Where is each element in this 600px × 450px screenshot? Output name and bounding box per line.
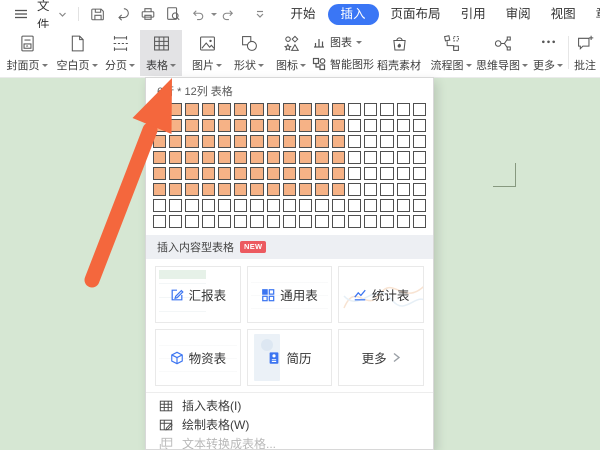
ribbon-item-chart[interactable]: 图表 (312, 31, 374, 53)
flowchart-icon (442, 34, 461, 53)
grid-cell[interactable] (218, 167, 231, 180)
grid-cell[interactable] (234, 199, 247, 212)
more-dots-icon (539, 34, 558, 53)
grid-cell[interactable] (364, 103, 377, 116)
grid-cell[interactable] (413, 135, 426, 148)
insert-table-icon (159, 399, 173, 413)
grid-cell[interactable] (380, 167, 393, 180)
grid-cell[interactable] (234, 103, 247, 116)
chevron-right-icon (392, 352, 401, 363)
grid-cell[interactable] (267, 151, 280, 164)
grid-cell[interactable] (202, 199, 215, 212)
ribbon-item-docer-assets[interactable]: 稻壳素材 (372, 30, 426, 76)
grid-cell[interactable] (299, 215, 312, 228)
grid-cell[interactable] (413, 215, 426, 228)
grid-cell[interactable] (299, 119, 312, 132)
grid-cell[interactable] (348, 199, 361, 212)
mindmap-icon (493, 34, 512, 53)
grid-cell[interactable] (299, 167, 312, 180)
grid-cell[interactable] (283, 119, 296, 132)
grid-cell[interactable] (250, 199, 263, 212)
grid-cell[interactable] (185, 151, 198, 164)
table-dropdown-menu: 插入表格(I) 绘制表格(W) 文本转换成表格... (146, 392, 433, 450)
grid-cell[interactable] (234, 167, 247, 180)
caret-down-icon (92, 64, 98, 67)
table-icon (152, 34, 171, 53)
shapes-icon (240, 34, 259, 53)
grid-cell[interactable] (267, 119, 280, 132)
ribbon-item-label: 表格 (146, 57, 168, 73)
new-badge: NEW (240, 241, 266, 252)
grid-cell[interactable] (185, 183, 198, 196)
grid-cell[interactable] (153, 103, 166, 116)
grid-cell[interactable] (267, 183, 280, 196)
grid-cell[interactable] (218, 151, 231, 164)
chart-icon (312, 35, 326, 49)
grid-cell[interactable] (413, 199, 426, 212)
grid-cell[interactable] (153, 135, 166, 148)
grid-cell[interactable] (315, 135, 328, 148)
ribbon-divider (568, 36, 569, 69)
grid-cell[interactable] (397, 135, 410, 148)
content-table-cards: 汇报表 通用表 统计表 物资表 简历 更多 (146, 259, 433, 392)
grid-cell[interactable] (234, 135, 247, 148)
grid-cell[interactable] (234, 183, 247, 196)
grid-cell[interactable] (202, 183, 215, 196)
grid-cell[interactable] (202, 167, 215, 180)
content-table-section-header: 插入内容型表格 NEW (146, 235, 433, 259)
grid-cell[interactable] (169, 167, 182, 180)
export-pdf-icon[interactable] (115, 6, 131, 22)
report-table-icon (170, 288, 184, 302)
ribbon-item-label: 图标 (276, 57, 298, 73)
grid-cell[interactable] (348, 135, 361, 148)
grid-cell[interactable] (250, 103, 263, 116)
table-dropdown-panel: 6行 * 12列 表格 插入内容型表格 NEW 汇报表 通用表 统计表 物资表 (145, 77, 434, 450)
grid-cell[interactable] (218, 199, 231, 212)
card-label: 简历 (286, 348, 311, 367)
menu-item-convert-text-to-table: 文本转换成表格... (146, 434, 433, 450)
card-label: 汇报表 (189, 285, 227, 304)
grid-cell[interactable] (315, 199, 328, 212)
card-stats-table[interactable]: 统计表 (338, 266, 424, 323)
grid-cell[interactable] (250, 183, 263, 196)
card-general-table[interactable]: 通用表 (247, 266, 333, 323)
grid-cell[interactable] (332, 215, 345, 228)
smart-graphics-icon (312, 57, 326, 71)
grid-cell[interactable] (169, 119, 182, 132)
grid-cell[interactable] (234, 215, 247, 228)
grid-cell[interactable] (202, 151, 215, 164)
grid-cell[interactable] (218, 103, 231, 116)
tab-review[interactable]: 审阅 (496, 0, 541, 28)
grid-cell[interactable] (202, 103, 215, 116)
grid-cell[interactable] (364, 199, 377, 212)
grid-cell[interactable] (234, 151, 247, 164)
grid-cell[interactable] (185, 135, 198, 148)
menu-item-insert-table[interactable]: 插入表格(I) (146, 396, 433, 415)
grid-cell[interactable] (348, 119, 361, 132)
titlebar: 文件 开始 插入 页面布局 引用 审阅 (0, 0, 600, 28)
grid-cell[interactable] (380, 151, 393, 164)
card-resume[interactable]: 简历 (247, 329, 333, 386)
chevron-down-icon[interactable] (58, 10, 67, 19)
tab-references[interactable]: 引用 (451, 0, 496, 28)
grid-cell[interactable] (332, 135, 345, 148)
grid-cell[interactable] (380, 199, 393, 212)
ribbon-item-label: 批注 (574, 57, 596, 73)
icons-icon (282, 34, 301, 53)
grid-cell[interactable] (364, 183, 377, 196)
grid-cell[interactable] (397, 199, 410, 212)
ribbon-item-label: 图表 (330, 34, 352, 50)
hamburger-icon[interactable] (14, 7, 28, 21)
menu-item-label: 文本转换成表格... (182, 435, 276, 450)
grid-cell[interactable] (250, 167, 263, 180)
grid-cell[interactable] (283, 183, 296, 196)
grid-cell[interactable] (299, 135, 312, 148)
caret-down-icon (258, 64, 264, 67)
grid-cell[interactable] (283, 167, 296, 180)
grid-cell[interactable] (153, 119, 166, 132)
grid-cell[interactable] (299, 151, 312, 164)
grid-cell[interactable] (397, 183, 410, 196)
grid-cell[interactable] (380, 119, 393, 132)
grid-cell[interactable] (364, 151, 377, 164)
ribbon-item-icons[interactable]: 图标 (270, 30, 312, 76)
margin-corner-mark (515, 163, 516, 187)
grid-cell[interactable] (202, 215, 215, 228)
grid-cell[interactable] (397, 167, 410, 180)
grid-cell[interactable] (315, 151, 328, 164)
grid-cell[interactable] (250, 135, 263, 148)
ribbon-item-label: 智能图形 (330, 56, 374, 72)
grid-cell[interactable] (348, 167, 361, 180)
ribbon-item-more[interactable]: 更多 (530, 30, 566, 76)
tab-home[interactable]: 开始 (281, 0, 326, 28)
grid-cell[interactable] (397, 215, 410, 228)
grid-cell[interactable] (283, 151, 296, 164)
ribbon-item-shapes[interactable]: 形状 (228, 30, 270, 76)
ribbon-item-label: 稻壳素材 (377, 57, 421, 73)
grid-cell[interactable] (185, 103, 198, 116)
ribbon-item-label: 形状 (234, 57, 256, 73)
grid-cell[interactable] (332, 167, 345, 180)
grid-cell[interactable] (218, 135, 231, 148)
grid-cell[interactable] (364, 135, 377, 148)
caret-down-icon (42, 64, 48, 67)
ribbon-item-blank-page[interactable]: 空白页 (52, 30, 102, 76)
margin-corner-mark (493, 186, 516, 187)
ribbon-item-label: 更多 (533, 57, 555, 73)
grid-cell[interactable] (299, 103, 312, 116)
caret-down-icon (356, 41, 362, 44)
grid-cell[interactable] (413, 167, 426, 180)
ribbon-item-comment[interactable]: 批注 (571, 30, 599, 76)
grid-cell[interactable] (299, 183, 312, 196)
grid-cell[interactable] (185, 119, 198, 132)
grid-cell[interactable] (267, 103, 280, 116)
grid-cell[interactable] (185, 199, 198, 212)
grid-cell[interactable] (250, 119, 263, 132)
grid-cell[interactable] (283, 135, 296, 148)
ribbon-item-label: 封面页 (7, 57, 40, 73)
grid-cell[interactable] (397, 119, 410, 132)
grid-cell[interactable] (332, 103, 345, 116)
table-size-grid (146, 103, 433, 228)
grid-cell[interactable] (413, 119, 426, 132)
caret-down-icon (300, 64, 306, 67)
card-report-table[interactable]: 汇报表 (155, 266, 241, 323)
grid-cell[interactable] (267, 135, 280, 148)
card-label: 更多 (362, 348, 387, 367)
comment-icon (576, 34, 595, 53)
card-supplies-table[interactable]: 物资表 (155, 329, 241, 386)
ribbon-item-label: 分页 (105, 57, 127, 73)
grid-cell[interactable] (267, 199, 280, 212)
grid-cell[interactable] (413, 183, 426, 196)
undo-dropdown-caret-icon[interactable] (211, 13, 217, 16)
docer-assets-icon (390, 34, 409, 53)
grid-cell[interactable] (364, 119, 377, 132)
grid-cell[interactable] (413, 151, 426, 164)
grid-cell[interactable] (315, 167, 328, 180)
divider (78, 7, 79, 21)
grid-cell[interactable] (169, 215, 182, 228)
grid-cell[interactable] (267, 215, 280, 228)
supplies-table-icon (170, 351, 184, 365)
grid-cell[interactable] (169, 199, 182, 212)
grid-cell[interactable] (283, 215, 296, 228)
ribbon-item-cover-page[interactable]: 封面页 (2, 30, 52, 76)
redo-icon[interactable] (221, 7, 236, 22)
menu-item-label: 绘制表格(W) (182, 416, 249, 433)
resume-icon (267, 351, 281, 365)
grid-cell[interactable] (153, 215, 166, 228)
grid-cell[interactable] (250, 215, 263, 228)
grid-cell[interactable] (380, 215, 393, 228)
ribbon-item-label: 图片 (192, 57, 214, 73)
caret-down-icon (129, 64, 135, 67)
ribbon-item-picture[interactable]: 图片 (186, 30, 228, 76)
stats-table-icon (353, 288, 367, 302)
grid-cell[interactable] (348, 215, 361, 228)
grid-cell[interactable] (153, 183, 166, 196)
grid-cell[interactable] (218, 183, 231, 196)
grid-cell[interactable] (348, 103, 361, 116)
grid-cell[interactable] (202, 119, 215, 132)
caret-down-icon (557, 64, 563, 67)
grid-cell[interactable] (169, 103, 182, 116)
tab-page-layout[interactable]: 页面布局 (381, 0, 451, 28)
grid-cell[interactable] (283, 103, 296, 116)
ribbon-item-label: 思维导图 (476, 57, 520, 73)
general-table-icon (261, 288, 275, 302)
grid-cell[interactable] (218, 119, 231, 132)
grid-cell[interactable] (153, 151, 166, 164)
ribbon-item-smart-graphics[interactable]: 智能图形 (312, 53, 374, 75)
ribbon-item-label: 流程图 (431, 57, 464, 73)
grid-cell[interactable] (332, 199, 345, 212)
grid-cell[interactable] (332, 119, 345, 132)
grid-cell[interactable] (202, 135, 215, 148)
grid-cell[interactable] (397, 151, 410, 164)
grid-cell[interactable] (380, 135, 393, 148)
convert-text-table-icon (159, 437, 173, 450)
section-title: 插入内容型表格 (157, 239, 234, 255)
cover-page-icon (18, 34, 37, 53)
grid-cell[interactable] (169, 135, 182, 148)
caret-down-icon (216, 64, 222, 67)
caret-down-icon (466, 64, 472, 67)
ribbon-item-flowchart[interactable]: 流程图 (428, 30, 474, 76)
grid-cell[interactable] (250, 151, 263, 164)
ribbon-stacked-group: 图表 智能图形 (312, 31, 374, 75)
menu-item-draw-table[interactable]: 绘制表格(W) (146, 415, 433, 434)
grid-cell[interactable] (315, 103, 328, 116)
grid-cell[interactable] (332, 151, 345, 164)
grid-cell[interactable] (332, 183, 345, 196)
grid-cell[interactable] (185, 215, 198, 228)
grid-cell[interactable] (218, 215, 231, 228)
grid-cell[interactable] (315, 119, 328, 132)
card-label: 物资表 (189, 348, 227, 367)
undo-icon[interactable] (190, 7, 205, 22)
grid-cell[interactable] (234, 119, 247, 132)
grid-cell[interactable] (185, 167, 198, 180)
tab-insert[interactable]: 插入 (328, 4, 379, 25)
card-label: 通用表 (280, 285, 318, 304)
grid-cell[interactable] (267, 167, 280, 180)
grid-cell[interactable] (299, 199, 312, 212)
ribbon-tabs: 开始 插入 页面布局 引用 审阅 视图 章节 开发工具 (281, 0, 600, 28)
grid-cell[interactable] (348, 151, 361, 164)
grid-cell[interactable] (283, 199, 296, 212)
print-icon[interactable] (140, 6, 156, 22)
grid-cell[interactable] (380, 103, 393, 116)
tab-section[interactable]: 章节 (586, 0, 600, 28)
ribbon: 封面页 空白页 分页 表格 图片 形状 图标 图表 智能图形 (0, 28, 600, 78)
collapse-ribbon-icon[interactable] (254, 8, 266, 20)
ribbon-item-page-break[interactable]: 分页 (100, 30, 140, 76)
grid-cell[interactable] (169, 183, 182, 196)
picture-icon (198, 34, 217, 53)
menu-item-label: 插入表格(I) (182, 397, 241, 414)
grid-cell[interactable] (348, 183, 361, 196)
tab-view[interactable]: 视图 (541, 0, 586, 28)
grid-cell[interactable] (315, 215, 328, 228)
page-break-icon (111, 34, 130, 53)
print-preview-icon[interactable] (165, 6, 181, 22)
blank-page-icon (68, 34, 87, 53)
save-icon[interactable] (90, 6, 106, 22)
grid-cell[interactable] (364, 167, 377, 180)
grid-cell[interactable] (380, 183, 393, 196)
ribbon-item-label: 空白页 (57, 57, 90, 73)
grid-cell[interactable] (153, 199, 166, 212)
ribbon-item-table[interactable]: 表格 (140, 30, 182, 76)
card-more-tables[interactable]: 更多 (338, 329, 424, 386)
caret-down-icon (170, 64, 176, 67)
card-label: 统计表 (372, 285, 410, 304)
grid-cell[interactable] (169, 151, 182, 164)
draw-table-icon (159, 418, 173, 432)
divider (245, 7, 246, 21)
grid-cell[interactable] (153, 167, 166, 180)
caret-down-icon (522, 64, 528, 67)
grid-cell[interactable] (364, 215, 377, 228)
grid-cell[interactable] (315, 183, 328, 196)
ribbon-item-mindmap[interactable]: 思维导图 (474, 30, 530, 76)
grid-cell[interactable] (413, 103, 426, 116)
grid-cell[interactable] (397, 103, 410, 116)
table-size-label: 6行 * 12列 表格 (146, 78, 433, 103)
